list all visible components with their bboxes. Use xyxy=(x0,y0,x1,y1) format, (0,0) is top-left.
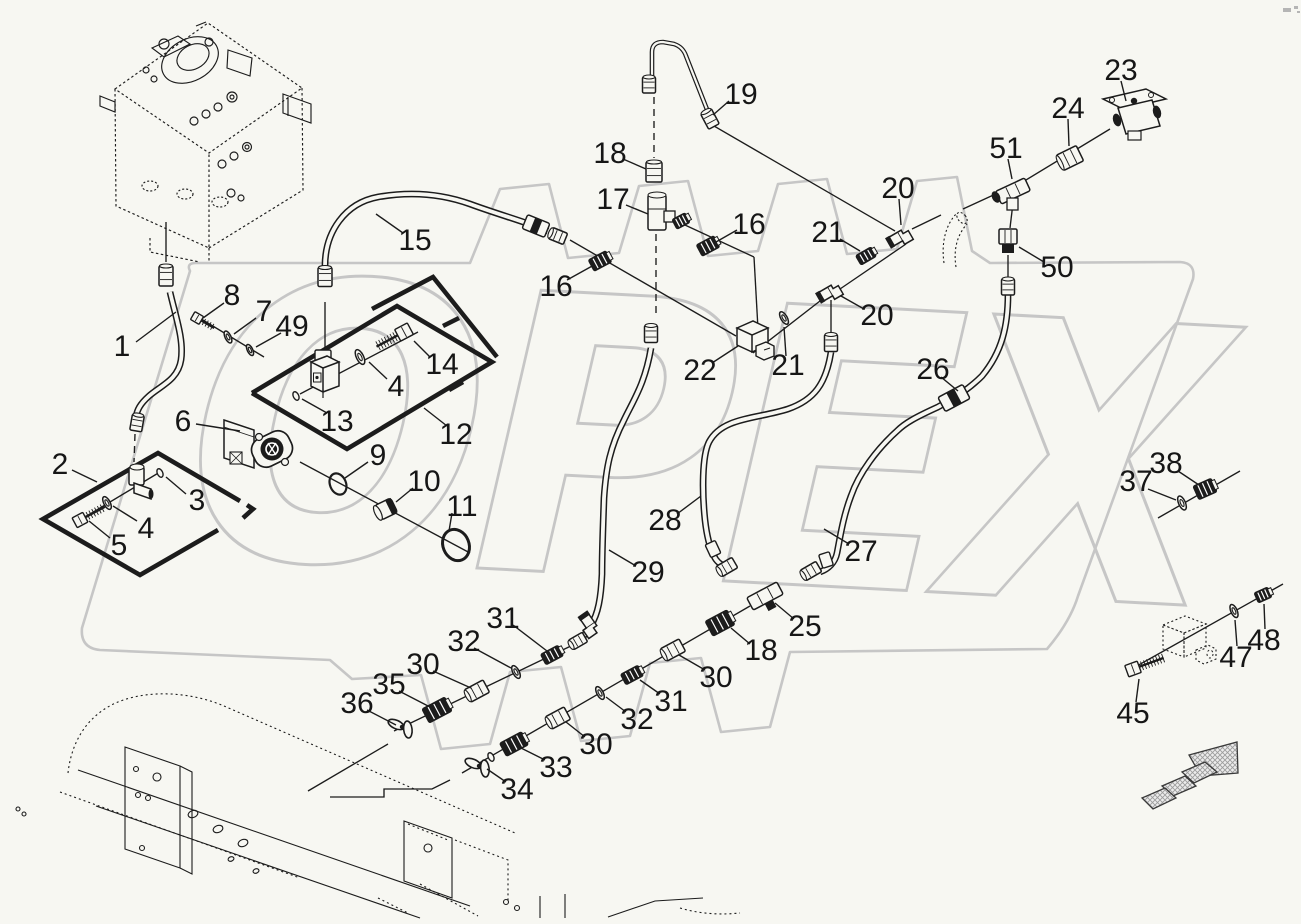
callout-label-30: 30 xyxy=(579,728,612,761)
part-nut xyxy=(1002,277,1015,295)
callout-label-5: 5 xyxy=(111,529,128,562)
callout-label-21: 21 xyxy=(811,216,844,249)
callout-label-51: 51 xyxy=(989,132,1022,165)
part-nut xyxy=(643,75,656,93)
callout-label-18: 18 xyxy=(744,634,777,667)
part-nut xyxy=(130,412,145,432)
callout-label-49: 49 xyxy=(275,310,308,343)
callout-label-8: 8 xyxy=(224,279,241,312)
callout-label-4: 4 xyxy=(388,370,405,403)
logo-mark-icon xyxy=(1283,8,1291,12)
callout-label-20: 20 xyxy=(860,299,893,332)
callout-label-16: 16 xyxy=(539,270,572,303)
callout-label-22: 22 xyxy=(683,354,716,387)
logo-mark-icon xyxy=(1297,11,1300,13)
callout-label-32: 32 xyxy=(620,703,653,736)
part-nut xyxy=(159,264,173,286)
callout-label-17: 17 xyxy=(596,183,629,216)
callout-label-15: 15 xyxy=(398,224,431,257)
callout-label-9: 9 xyxy=(370,439,387,472)
callout-label-32: 32 xyxy=(447,625,480,658)
callout-label-6: 6 xyxy=(175,405,192,438)
callout-label-11: 11 xyxy=(446,490,477,523)
callout-label-12: 12 xyxy=(439,418,472,451)
callout-label-28: 28 xyxy=(648,504,681,537)
part-nut xyxy=(645,324,658,343)
callout-label-19: 19 xyxy=(724,78,757,111)
callout-label-21: 21 xyxy=(771,349,804,382)
callout-label-13: 13 xyxy=(320,405,353,438)
callout-label-25: 25 xyxy=(788,610,821,643)
callout-label-27: 27 xyxy=(844,535,877,568)
callout-label-20: 20 xyxy=(881,172,914,205)
part-nut xyxy=(646,160,662,182)
callout-label-30: 30 xyxy=(406,648,439,681)
callout-label-18: 18 xyxy=(593,137,626,170)
part-nut xyxy=(318,266,332,287)
callout-label-37: 37 xyxy=(1119,465,1152,498)
callout-label-30: 30 xyxy=(699,661,732,694)
callout-label-34: 34 xyxy=(500,773,533,806)
callout-label-36: 36 xyxy=(340,687,373,720)
callout-label-48: 48 xyxy=(1247,624,1280,657)
callout-label-31: 31 xyxy=(486,602,519,635)
callout-label-2: 2 xyxy=(52,448,69,481)
callout-label-50: 50 xyxy=(1040,251,1073,284)
callout-label-23: 23 xyxy=(1104,54,1137,87)
callout-label-1: 1 xyxy=(114,330,131,363)
callout-label-26: 26 xyxy=(916,353,949,386)
callout-label-4: 4 xyxy=(138,512,155,545)
callout-label-14: 14 xyxy=(425,348,458,381)
callout-label-10: 10 xyxy=(407,465,440,498)
callout-label-33: 33 xyxy=(539,751,572,784)
part-nut xyxy=(825,333,838,352)
callout-label-3: 3 xyxy=(189,484,206,517)
parts-diagram-canvas: OPEX187491514413126234591011161718191620… xyxy=(0,0,1301,924)
callout-label-38: 38 xyxy=(1149,447,1182,480)
callout-label-35: 35 xyxy=(372,668,405,701)
callout-label-45: 45 xyxy=(1116,697,1149,730)
callout-label-16: 16 xyxy=(732,208,765,241)
callout-label-31: 31 xyxy=(654,685,687,718)
parts-diagram-page: OPEX187491514413126234591011161718191620… xyxy=(0,0,1301,924)
callout-label-24: 24 xyxy=(1051,92,1084,125)
callout-label-7: 7 xyxy=(256,295,273,328)
logo-mark-icon xyxy=(1294,6,1298,9)
callout-label-29: 29 xyxy=(631,556,664,589)
